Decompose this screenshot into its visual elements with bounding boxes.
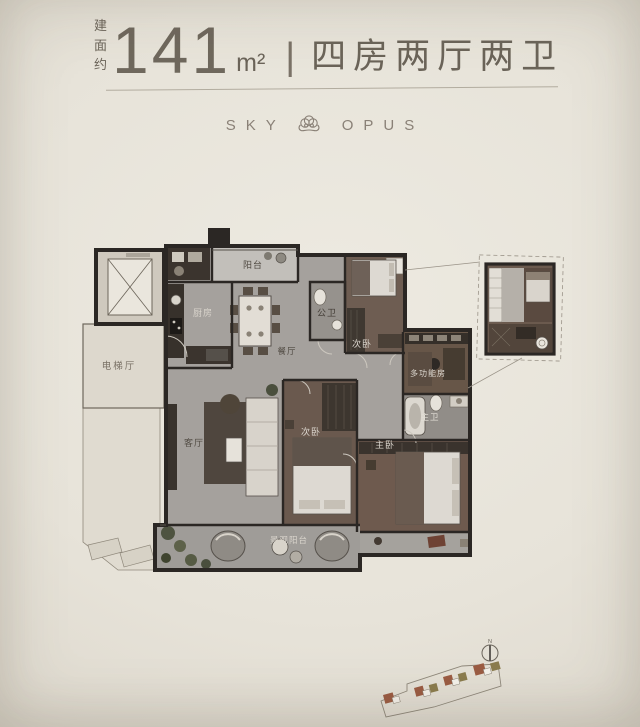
north-indicator: N — [482, 639, 498, 661]
room-label-multi-function: 多功能房 — [410, 368, 446, 378]
room-label-kitchen: 厨房 — [193, 307, 213, 318]
building-cluster — [383, 691, 400, 706]
room-label-dining: 餐厅 — [277, 346, 296, 356]
room-label-balcony: 阳台 — [243, 259, 263, 270]
header-underline — [106, 86, 558, 91]
floor-plan: 阳台 厨房 餐厅 公卫 次卧 多功能房 主卫 电梯厅 客厅 次卧 主卧 景观阳台 — [70, 215, 570, 587]
area-unit: m² — [236, 49, 265, 78]
layout-type: 四房两厅两卫 — [311, 28, 563, 79]
room-label-master-bedroom: 主卧 — [375, 439, 395, 450]
area-value: 141 — [112, 20, 231, 81]
room-label-view-balcony: 景观阳台 — [270, 535, 308, 545]
brand-logo: SKY OPUS — [0, 114, 640, 136]
building-cluster — [414, 682, 439, 699]
header: 建面约 141 m² | 四房两厅两卫 — [94, 16, 563, 81]
room-label-master-bath: 主卫 — [420, 412, 439, 422]
brand-word-left: SKY — [216, 117, 286, 134]
room-label-public-bath: 公卫 — [317, 308, 337, 318]
north-label: N — [488, 639, 492, 645]
building-cluster — [443, 671, 468, 688]
building-cluster — [473, 659, 501, 677]
room-label-elevator-hall: 电梯厅 — [102, 360, 137, 372]
common-area — [83, 250, 164, 570]
brand-word-right: OPUS — [332, 117, 425, 134]
brochure-photo: 建面约 141 m² | 四房两厅两卫 SKY OPUS — [0, 0, 640, 727]
room-label-living: 客厅 — [184, 437, 204, 448]
room-label-bedroom-top: 次卧 — [352, 338, 372, 349]
site-plan: N — [368, 632, 518, 727]
header-separator: | — [285, 36, 295, 79]
building-clusters — [383, 659, 501, 705]
room-label-bedroom-mid: 次卧 — [301, 426, 321, 437]
cloud-ornament-icon — [294, 114, 324, 136]
area-prefix: 建面约 — [94, 16, 109, 75]
